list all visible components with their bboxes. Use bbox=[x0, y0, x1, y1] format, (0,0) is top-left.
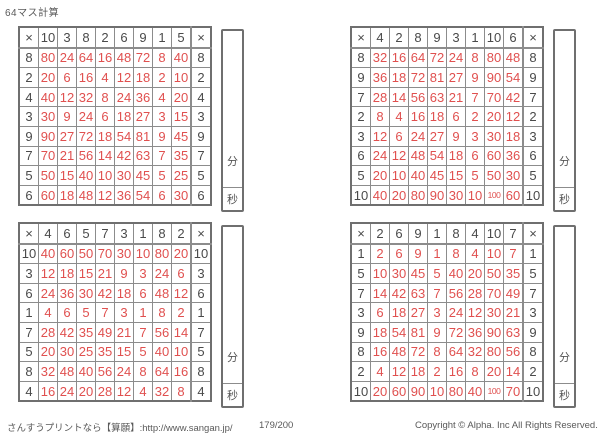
row-factor-cell: 9 bbox=[351, 68, 371, 88]
answer-cell: 81 bbox=[134, 126, 153, 146]
row-factor-cell: 7 bbox=[523, 87, 543, 107]
answer-cell: 4 bbox=[153, 87, 172, 107]
answer-cell: 35 bbox=[77, 322, 96, 342]
answer-cell: 16 bbox=[409, 107, 428, 127]
answer-cell: 90 bbox=[485, 322, 504, 342]
column-factor-cell: 5 bbox=[172, 27, 192, 48]
column-factor-cell: 3 bbox=[447, 27, 466, 48]
answer-cell: 8 bbox=[447, 244, 466, 264]
answer-cell: 21 bbox=[447, 87, 466, 107]
answer-cell: 70 bbox=[39, 146, 58, 166]
multiply-operator-cell: × bbox=[523, 223, 543, 244]
answer-cell: 16 bbox=[390, 48, 409, 68]
answer-cell: 50 bbox=[77, 244, 96, 264]
answer-cell: 72 bbox=[447, 322, 466, 342]
row-factor-cell: 7 bbox=[523, 283, 543, 303]
answer-cell: 30 bbox=[485, 126, 504, 146]
answer-cell: 24 bbox=[447, 48, 466, 68]
seconds-label: 秒 bbox=[555, 387, 574, 403]
answer-cell: 10 bbox=[485, 244, 504, 264]
column-factor-cell: 4 bbox=[466, 223, 485, 244]
answer-cell: 2 bbox=[371, 244, 390, 264]
answer-cell: 8 bbox=[466, 48, 485, 68]
grid-row: 10406050703010802010 bbox=[19, 244, 211, 264]
column-factor-cell: 2 bbox=[390, 27, 409, 48]
grid-row: 83216647224880488 bbox=[351, 48, 543, 68]
answer-cell: 5 bbox=[466, 166, 485, 186]
row-factor-cell: 3 bbox=[191, 107, 211, 127]
minutes-label: 分 bbox=[223, 349, 242, 365]
answer-cell: 42 bbox=[115, 146, 134, 166]
row-factor-cell: 6 bbox=[351, 146, 371, 166]
answer-cell: 28 bbox=[96, 381, 115, 401]
row-factor-cell: 2 bbox=[523, 362, 543, 382]
answer-cell: 10 bbox=[390, 166, 409, 186]
answer-cell: 48 bbox=[77, 185, 96, 205]
answer-cell: 7 bbox=[504, 244, 524, 264]
answer-cell: 48 bbox=[58, 362, 77, 382]
answer-cell: 36 bbox=[371, 68, 390, 88]
page-title: 64マス計算 bbox=[5, 4, 59, 19]
answer-cell: 18 bbox=[371, 322, 390, 342]
answer-cell: 63 bbox=[504, 322, 524, 342]
answer-cell: 40 bbox=[39, 244, 58, 264]
answer-cell: 12 bbox=[466, 303, 485, 323]
multiply-operator-cell: × bbox=[523, 27, 543, 48]
answer-cell: 72 bbox=[134, 48, 153, 68]
answer-cell: 56 bbox=[77, 146, 96, 166]
answer-cell: 56 bbox=[153, 322, 172, 342]
answer-cell: 14 bbox=[390, 87, 409, 107]
row-factor-cell: 7 bbox=[351, 283, 371, 303]
answer-cell: 8 bbox=[466, 362, 485, 382]
answer-cell: 2 bbox=[172, 303, 192, 323]
answer-cell: 16 bbox=[96, 48, 115, 68]
answer-cell: 6 bbox=[466, 146, 485, 166]
answer-cell: 18 bbox=[96, 126, 115, 146]
answer-cell: 12 bbox=[172, 283, 192, 303]
answer-cell: 12 bbox=[504, 107, 524, 127]
multiply-operator-cell: × bbox=[19, 27, 39, 48]
answer-cell: 2 bbox=[428, 362, 447, 382]
column-factor-cell: 4 bbox=[371, 27, 390, 48]
answer-cell: 40 bbox=[466, 381, 485, 401]
row-factor-cell: 8 bbox=[523, 342, 543, 362]
column-factor-cell: 6 bbox=[504, 27, 524, 48]
row-factor-cell: 3 bbox=[19, 107, 39, 127]
column-factor-cell: 8 bbox=[153, 223, 172, 244]
column-factor-cell: 8 bbox=[77, 27, 96, 48]
answer-cell: 20 bbox=[77, 381, 96, 401]
answer-cell: 6 bbox=[58, 303, 77, 323]
row-factor-cell: 5 bbox=[523, 264, 543, 284]
answer-cell: 70 bbox=[96, 244, 115, 264]
row-factor-cell: 7 bbox=[191, 146, 211, 166]
answer-cell: 28 bbox=[39, 322, 58, 342]
answer-cell: 18 bbox=[447, 146, 466, 166]
answer-cell: 6 bbox=[390, 126, 409, 146]
answer-cell: 7 bbox=[466, 87, 485, 107]
row-factor-cell: 7 bbox=[19, 322, 39, 342]
row-factor-cell: 7 bbox=[351, 87, 371, 107]
answer-cell: 20 bbox=[172, 87, 192, 107]
grid-row: 1465731821 bbox=[19, 303, 211, 323]
answer-cell: 10 bbox=[96, 166, 115, 186]
answer-cell: 90 bbox=[485, 68, 504, 88]
row-factor-cell: 5 bbox=[19, 342, 39, 362]
answer-cell: 18 bbox=[134, 68, 153, 88]
answer-cell: 64 bbox=[77, 48, 96, 68]
time-box-divider bbox=[555, 383, 574, 384]
answer-cell: 6 bbox=[134, 283, 153, 303]
answer-cell: 32 bbox=[371, 48, 390, 68]
answer-cell: 36 bbox=[115, 185, 134, 205]
column-factor-cell: 9 bbox=[428, 27, 447, 48]
footer-site-credit: さんすうプリントなら【算願】:http://www.sangan.jp/ bbox=[7, 420, 233, 434]
column-factor-cell: 3 bbox=[115, 223, 134, 244]
grid-row: 241218216820142 bbox=[351, 362, 543, 382]
answer-cell: 27 bbox=[134, 107, 153, 127]
grid-header-row: ×103826915× bbox=[19, 27, 211, 48]
row-factor-cell: 8 bbox=[191, 362, 211, 382]
column-factor-cell: 10 bbox=[485, 223, 504, 244]
grid-row: 12691841071 bbox=[351, 244, 543, 264]
answer-cell: 7 bbox=[96, 303, 115, 323]
row-factor-cell: 8 bbox=[19, 362, 39, 382]
answer-cell: 60 bbox=[504, 185, 524, 205]
answer-cell: 10 bbox=[466, 185, 485, 205]
answer-cell: 14 bbox=[172, 322, 192, 342]
answer-cell: 24 bbox=[39, 283, 58, 303]
row-factor-cell: 10 bbox=[191, 244, 211, 264]
grid-row: 77021561442637357 bbox=[19, 146, 211, 166]
row-factor-cell: 9 bbox=[191, 126, 211, 146]
answer-cell: 9 bbox=[428, 322, 447, 342]
grid-row: 62412485418660366 bbox=[351, 146, 543, 166]
row-factor-cell: 2 bbox=[191, 68, 211, 88]
column-factor-cell: 1 bbox=[134, 223, 153, 244]
answer-cell: 30 bbox=[115, 244, 134, 264]
row-factor-cell: 6 bbox=[19, 185, 39, 205]
row-factor-cell: 1 bbox=[19, 303, 39, 323]
multiply-operator-cell: × bbox=[191, 27, 211, 48]
seconds-label: 秒 bbox=[223, 387, 242, 403]
column-factor-cell: 2 bbox=[172, 223, 192, 244]
answer-cell: 8 bbox=[153, 48, 172, 68]
answer-cell: 16 bbox=[371, 342, 390, 362]
answer-cell: 56 bbox=[96, 362, 115, 382]
answer-cell: 42 bbox=[96, 283, 115, 303]
answer-cell: 10 bbox=[428, 381, 447, 401]
column-factor-cell: 9 bbox=[409, 223, 428, 244]
answer-cell: 16 bbox=[39, 381, 58, 401]
answer-cell: 50 bbox=[39, 166, 58, 186]
answer-cell: 64 bbox=[153, 362, 172, 382]
row-factor-cell: 9 bbox=[19, 126, 39, 146]
answer-cell: 9 bbox=[466, 68, 485, 88]
time-box-divider bbox=[223, 187, 242, 188]
column-factor-cell: 6 bbox=[58, 223, 77, 244]
row-factor-cell: 1 bbox=[523, 244, 543, 264]
answer-cell: 30 bbox=[115, 166, 134, 186]
answer-cell: 12 bbox=[58, 87, 77, 107]
answer-cell: 90 bbox=[428, 185, 447, 205]
answer-cell: 2 bbox=[153, 68, 172, 88]
answer-cell: 3 bbox=[428, 303, 447, 323]
row-factor-cell: 3 bbox=[351, 303, 371, 323]
grid-row: 91854819723690639 bbox=[351, 322, 543, 342]
answer-cell: 4 bbox=[96, 68, 115, 88]
answer-cell: 21 bbox=[58, 146, 77, 166]
answer-cell: 18 bbox=[58, 264, 77, 284]
answer-cell: 32 bbox=[466, 342, 485, 362]
column-factor-cell: 7 bbox=[504, 223, 524, 244]
row-factor-cell: 5 bbox=[191, 342, 211, 362]
answer-cell: 42 bbox=[58, 322, 77, 342]
answer-cell: 45 bbox=[428, 166, 447, 186]
answer-cell: 70 bbox=[485, 283, 504, 303]
answer-cell: 8 bbox=[371, 107, 390, 127]
answer-cell: 32 bbox=[77, 87, 96, 107]
row-factor-cell: 2 bbox=[523, 107, 543, 127]
answer-cell: 35 bbox=[172, 146, 192, 166]
answer-cell: 4 bbox=[134, 381, 153, 401]
row-factor-cell: 9 bbox=[351, 322, 371, 342]
grid-row: 62436304218648126 bbox=[19, 283, 211, 303]
answer-cell: 45 bbox=[172, 126, 192, 146]
row-factor-cell: 5 bbox=[523, 166, 543, 186]
multiplication-grid-top-right: ×428931106×83216647224880488936187281279… bbox=[350, 26, 544, 206]
row-factor-cell: 4 bbox=[191, 87, 211, 107]
answer-cell: 18 bbox=[504, 126, 524, 146]
time-record-box: 分 秒 bbox=[553, 29, 576, 212]
minutes-label: 分 bbox=[223, 153, 242, 169]
answer-cell: 9 bbox=[409, 244, 428, 264]
grid-row: 81648728643280568 bbox=[351, 342, 543, 362]
answer-cell: 24 bbox=[371, 146, 390, 166]
row-factor-cell: 8 bbox=[191, 48, 211, 68]
row-factor-cell: 3 bbox=[523, 126, 543, 146]
answer-cell: 48 bbox=[115, 48, 134, 68]
row-factor-cell: 2 bbox=[351, 107, 371, 127]
answer-cell: 18 bbox=[390, 68, 409, 88]
answer-cell: 5 bbox=[77, 303, 96, 323]
grid-row: 312624279330183 bbox=[351, 126, 543, 146]
answer-cell: 48 bbox=[409, 146, 428, 166]
answer-cell: 54 bbox=[134, 185, 153, 205]
time-record-box: 分 秒 bbox=[553, 225, 576, 408]
column-factor-cell: 4 bbox=[39, 223, 58, 244]
column-factor-cell: 2 bbox=[96, 27, 115, 48]
grid-block-top-left: ×103826915×88024641648728408220616412182… bbox=[18, 26, 244, 212]
answer-cell: 63 bbox=[409, 283, 428, 303]
seconds-label: 秒 bbox=[223, 191, 242, 207]
multiplication-grid-bottom-right: ×269184107×12691841071510304554020503557… bbox=[350, 222, 544, 402]
row-factor-cell: 5 bbox=[351, 166, 371, 186]
answer-cell: 54 bbox=[504, 68, 524, 88]
row-factor-cell: 10 bbox=[351, 381, 371, 401]
answer-cell: 30 bbox=[58, 342, 77, 362]
answer-cell: 40 bbox=[39, 87, 58, 107]
answer-cell: 6 bbox=[390, 244, 409, 264]
answer-cell: 3 bbox=[466, 126, 485, 146]
grid-block-top-right: ×428931106×83216647224880488936187281279… bbox=[350, 26, 576, 212]
column-factor-cell: 5 bbox=[77, 223, 96, 244]
answer-cell: 48 bbox=[390, 342, 409, 362]
answer-cell: 27 bbox=[428, 126, 447, 146]
row-factor-cell: 8 bbox=[351, 48, 371, 68]
row-factor-cell: 8 bbox=[19, 48, 39, 68]
answer-cell: 90 bbox=[39, 126, 58, 146]
multiply-operator-cell: × bbox=[351, 223, 371, 244]
answer-cell: 64 bbox=[409, 48, 428, 68]
grid-row: 66018481236546306 bbox=[19, 185, 211, 205]
answer-cell: 18 bbox=[428, 107, 447, 127]
grid-row: 102060901080401007010 bbox=[351, 381, 543, 401]
answer-cell: 14 bbox=[96, 146, 115, 166]
answer-cell: 30 bbox=[77, 283, 96, 303]
answer-cell: 20 bbox=[485, 362, 504, 382]
answer-cell: 42 bbox=[390, 283, 409, 303]
grid-row: 52010404515550305 bbox=[351, 166, 543, 186]
row-factor-cell: 8 bbox=[351, 342, 371, 362]
column-factor-cell: 1 bbox=[466, 27, 485, 48]
row-factor-cell: 6 bbox=[191, 283, 211, 303]
answer-cell: 8 bbox=[428, 342, 447, 362]
answer-cell: 4 bbox=[371, 362, 390, 382]
answer-cell: 24 bbox=[58, 48, 77, 68]
answer-cell: 18 bbox=[115, 283, 134, 303]
answer-cell: 9 bbox=[447, 126, 466, 146]
grid-row: 28416186220122 bbox=[351, 107, 543, 127]
grid-row: 4401232824364204 bbox=[19, 87, 211, 107]
grid-row: 51030455402050355 bbox=[351, 264, 543, 284]
answer-cell: 9 bbox=[58, 107, 77, 127]
answer-cell: 20 bbox=[390, 185, 409, 205]
grid-row: 104020809030101006010 bbox=[351, 185, 543, 205]
answer-cell: 48 bbox=[504, 48, 524, 68]
answer-cell: 80 bbox=[485, 342, 504, 362]
column-factor-cell: 8 bbox=[447, 223, 466, 244]
answer-cell: 20 bbox=[39, 68, 58, 88]
answer-cell: 12 bbox=[115, 381, 134, 401]
answer-cell: 24 bbox=[447, 303, 466, 323]
answer-cell: 15 bbox=[447, 166, 466, 186]
answer-cell: 40 bbox=[172, 48, 192, 68]
answer-cell: 4 bbox=[466, 244, 485, 264]
minutes-label: 分 bbox=[555, 153, 574, 169]
answer-cell: 10 bbox=[371, 264, 390, 284]
answer-cell: 81 bbox=[409, 322, 428, 342]
answer-cell: 40 bbox=[409, 166, 428, 186]
answer-cell: 80 bbox=[409, 185, 428, 205]
grid-row: 220616412182102 bbox=[19, 68, 211, 88]
grid-row: 3618273241230213 bbox=[351, 303, 543, 323]
grid-row: 88024641648728408 bbox=[19, 48, 211, 68]
grid-row: 52030253515540105 bbox=[19, 342, 211, 362]
answer-cell: 10 bbox=[134, 244, 153, 264]
answer-cell: 15 bbox=[58, 166, 77, 186]
row-factor-cell: 5 bbox=[19, 166, 39, 186]
answer-cell: 80 bbox=[153, 244, 172, 264]
grid-row: 83248405624864168 bbox=[19, 362, 211, 382]
column-factor-cell: 7 bbox=[96, 223, 115, 244]
answer-cell: 40 bbox=[77, 166, 96, 186]
answer-cell: 28 bbox=[466, 283, 485, 303]
column-factor-cell: 6 bbox=[115, 27, 134, 48]
time-box-divider bbox=[555, 187, 574, 188]
grid-row: 4162420281243284 bbox=[19, 381, 211, 401]
answer-cell: 27 bbox=[409, 303, 428, 323]
answer-cell: 15 bbox=[172, 107, 192, 127]
row-factor-cell: 1 bbox=[351, 244, 371, 264]
answer-cell: 15 bbox=[115, 342, 134, 362]
answer-cell: 12 bbox=[96, 185, 115, 205]
answer-cell: 40 bbox=[447, 264, 466, 284]
grid-block-bottom-left: ×46573182×104060507030108020103121815219… bbox=[18, 222, 244, 408]
row-factor-cell: 2 bbox=[19, 68, 39, 88]
column-factor-cell: 6 bbox=[390, 223, 409, 244]
answer-cell: 1 bbox=[428, 244, 447, 264]
answer-cell: 20 bbox=[466, 264, 485, 284]
answer-cell: 8 bbox=[134, 362, 153, 382]
grid-header-row: ×269184107× bbox=[351, 223, 543, 244]
answer-cell: 28 bbox=[371, 87, 390, 107]
answer-cell: 40 bbox=[153, 342, 172, 362]
answer-cell: 5 bbox=[428, 264, 447, 284]
grid-row: 330924618273153 bbox=[19, 107, 211, 127]
answer-cell: 18 bbox=[115, 107, 134, 127]
answer-cell: 45 bbox=[409, 264, 428, 284]
answer-cell: 56 bbox=[409, 87, 428, 107]
answer-cell: 54 bbox=[428, 146, 447, 166]
time-record-box: 分 秒 bbox=[221, 225, 244, 408]
multiplication-grid-top-left: ×103826915×88024641648728408220616412182… bbox=[18, 26, 212, 206]
answer-cell: 18 bbox=[409, 362, 428, 382]
row-factor-cell: 10 bbox=[19, 244, 39, 264]
answer-cell: 100 bbox=[485, 381, 504, 401]
answer-cell: 8 bbox=[153, 303, 172, 323]
answer-cell: 100 bbox=[485, 185, 504, 205]
answer-cell: 21 bbox=[504, 303, 524, 323]
answer-cell: 9 bbox=[115, 264, 134, 284]
answer-cell: 24 bbox=[153, 264, 172, 284]
answer-cell: 3 bbox=[115, 303, 134, 323]
answer-cell: 30 bbox=[447, 185, 466, 205]
row-factor-cell: 4 bbox=[191, 381, 211, 401]
answer-cell: 24 bbox=[409, 126, 428, 146]
answer-cell: 35 bbox=[504, 264, 524, 284]
grid-row: 71442637562870497 bbox=[351, 283, 543, 303]
answer-cell: 21 bbox=[96, 264, 115, 284]
answer-cell: 12 bbox=[115, 68, 134, 88]
answer-cell: 49 bbox=[504, 283, 524, 303]
answer-cell: 36 bbox=[134, 87, 153, 107]
answer-cell: 12 bbox=[390, 362, 409, 382]
grid-row: 312181521932463 bbox=[19, 264, 211, 284]
answer-cell: 64 bbox=[447, 342, 466, 362]
answer-cell: 40 bbox=[371, 185, 390, 205]
answer-cell: 20 bbox=[172, 244, 192, 264]
answer-cell: 3 bbox=[153, 107, 172, 127]
answer-cell: 21 bbox=[115, 322, 134, 342]
grid-block-bottom-right: ×269184107×12691841071510304554020503557… bbox=[350, 222, 576, 408]
answer-cell: 54 bbox=[115, 126, 134, 146]
answer-cell: 20 bbox=[371, 166, 390, 186]
answer-cell: 32 bbox=[39, 362, 58, 382]
answer-cell: 80 bbox=[485, 48, 504, 68]
answer-cell: 36 bbox=[466, 322, 485, 342]
